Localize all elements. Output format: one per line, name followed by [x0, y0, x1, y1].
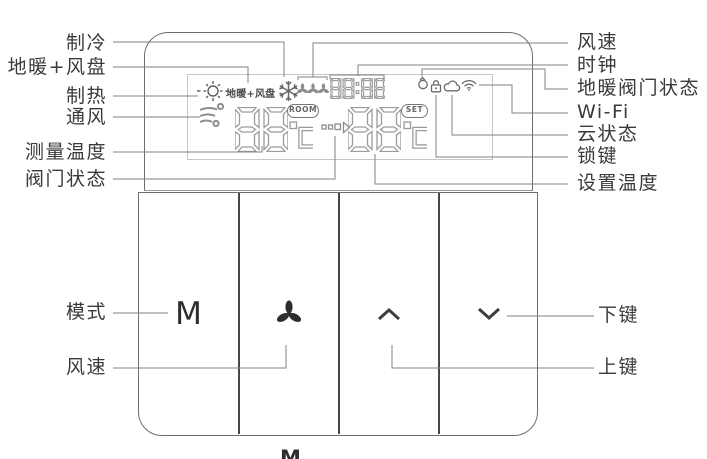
down-button[interactable] [441, 194, 537, 434]
mode-button[interactable]: M [140, 194, 237, 434]
callout-label-clock: 时钟 [577, 56, 618, 75]
sun-heating-icon [197, 80, 229, 102]
wifi-icon [461, 78, 477, 91]
ventilation-icon [199, 102, 226, 129]
button-divider-2 [338, 193, 340, 434]
callout-label-heating: 制热 [66, 87, 107, 106]
thermostat-callout-diagram: 地暖+风盘 [0, 0, 707, 459]
fan-icon [274, 299, 304, 329]
clipped-bottom-text: M [280, 446, 301, 459]
lock-icon [430, 79, 442, 93]
callout-label-set-temperature: 设置温度 [577, 174, 659, 193]
callout-label-valve-status: 阀门状态 [25, 170, 107, 189]
valve-state-indicator [321, 120, 351, 135]
up-button[interactable] [341, 194, 437, 434]
callout-label-down-key: 下键 [598, 306, 639, 325]
callout-label-cloud-status: 云状态 [577, 125, 639, 144]
callout-label-ventilation: 通风 [66, 108, 107, 127]
callout-label-floor-heating-valve-status: 地暖阀门状态 [577, 79, 700, 98]
clock-digits [330, 78, 385, 99]
callout-label-floor-heating-fan-coil: 地暖+风盘 [8, 58, 107, 77]
celsius-unit-room [289, 120, 315, 149]
button-divider-3 [438, 193, 440, 434]
celsius-unit-set [403, 120, 429, 149]
fan-speed-button[interactable] [241, 194, 337, 434]
mode-button-label: M [175, 296, 202, 332]
fan-speed-icons [297, 83, 329, 96]
callout-label-lock-key: 锁键 [577, 147, 618, 166]
callout-label-measured-temperature: 测量温度 [25, 143, 107, 162]
room-temp-digits [235, 107, 288, 152]
callout-label-wifi: Wi-Fi [577, 103, 630, 122]
chevron-up-icon [377, 307, 401, 321]
cloud-icon [443, 80, 461, 93]
callout-label-mode: 模式 [66, 303, 107, 322]
chevron-down-icon [477, 307, 501, 321]
set-badge: SET [401, 104, 428, 118]
button-divider-1 [238, 193, 240, 434]
callout-label-up-key: 上键 [598, 358, 639, 377]
room-badge: ROOM [287, 104, 319, 118]
callout-label-cooling: 制冷 [66, 34, 107, 53]
callout-label-fan-speed-button: 风速 [66, 358, 107, 377]
callout-label-fan-speed-display: 风速 [577, 33, 618, 52]
set-temp-digits [348, 107, 401, 152]
mode-segment-text: 地暖+风盘 [226, 85, 275, 100]
floor-valve-icon [417, 76, 429, 90]
